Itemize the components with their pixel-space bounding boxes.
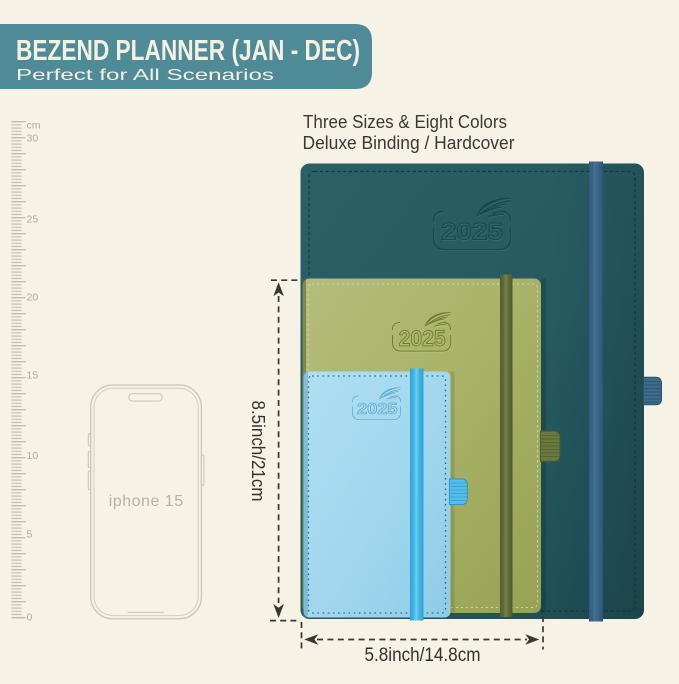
svg-text:25: 25 [27, 213, 39, 225]
svg-text:cm: cm [27, 120, 41, 132]
svg-text:2025: 2025 [441, 219, 503, 246]
svg-text:15: 15 [27, 370, 39, 382]
svg-text:2025: 2025 [399, 326, 446, 351]
svg-text:2025: 2025 [357, 401, 398, 418]
svg-text:Perfect for All Scenarios: Perfect for All Scenarios [16, 67, 274, 84]
svg-text:20: 20 [27, 292, 39, 304]
svg-text:10: 10 [27, 450, 39, 462]
svg-text:8.5inch/21cm: 8.5inch/21cm [248, 401, 269, 502]
svg-text:5: 5 [27, 528, 33, 540]
svg-text:BEZEND PLANNER (JAN - DEC): BEZEND PLANNER (JAN - DEC) [16, 35, 360, 67]
svg-text:30: 30 [27, 132, 39, 144]
svg-text:Deluxe Binding / Hardcover: Deluxe Binding / Hardcover [303, 133, 515, 153]
svg-text:iphone 15: iphone 15 [109, 493, 184, 510]
svg-text:5.8inch/14.8cm: 5.8inch/14.8cm [365, 645, 481, 666]
svg-text:Three Sizes & Eight Colors: Three Sizes & Eight Colors [303, 112, 507, 132]
svg-text:0: 0 [27, 611, 33, 623]
